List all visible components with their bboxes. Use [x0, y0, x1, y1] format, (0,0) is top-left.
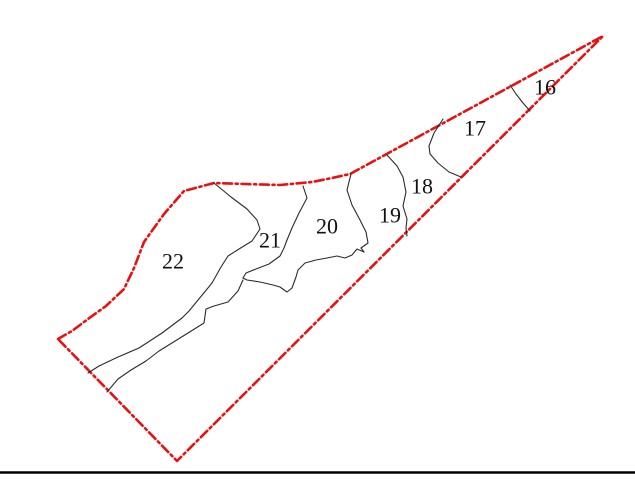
zone-map-svg: 16171819202122 [0, 0, 635, 479]
zone-20-lower-edge [243, 249, 364, 292]
zone-label-18: 18 [411, 174, 433, 199]
divider-21-22 [88, 183, 260, 373]
divider-16-17 [510, 85, 530, 111]
zone-label-22: 22 [162, 249, 184, 274]
zone-label-20: 20 [316, 214, 338, 239]
zone-label-21: 21 [259, 228, 281, 253]
zone-label-17: 17 [464, 116, 486, 141]
zone-label-16: 16 [534, 75, 556, 100]
inner-strip-line [107, 280, 243, 392]
site-boundary [58, 36, 603, 461]
divider-19-20 [347, 174, 368, 252]
zone-map-canvas: 16171819202122 [0, 0, 635, 479]
zone-label-19: 19 [379, 203, 401, 228]
